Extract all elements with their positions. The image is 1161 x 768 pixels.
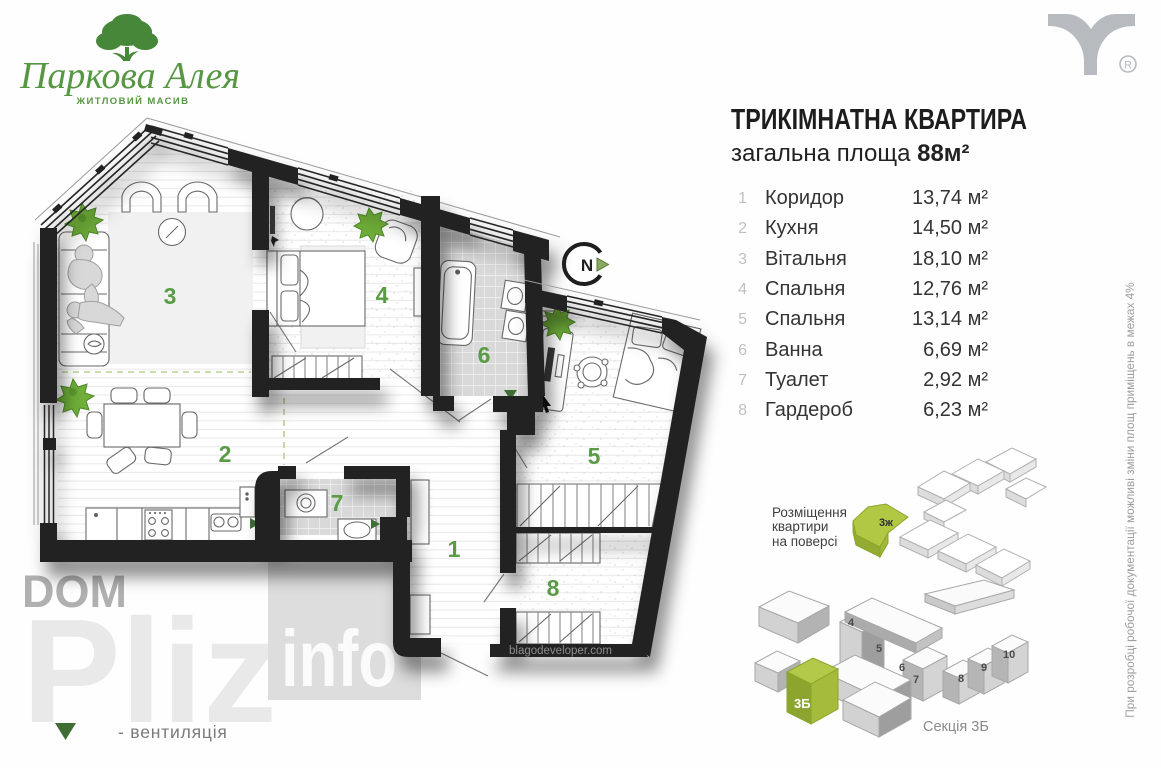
svg-text:Спальня: Спальня (765, 308, 845, 330)
svg-text:info: info (281, 614, 397, 703)
svg-text:ЖИТЛОВИЙ МАСИВ: ЖИТЛОВИЙ МАСИВ (76, 95, 190, 107)
svg-text:Розміщення: Розміщення (772, 505, 847, 520)
svg-text:Коридор: Коридор (765, 187, 844, 209)
svg-text:6,69 м²: 6,69 м² (923, 339, 988, 361)
svg-text:загальна площа 88м²: загальна площа 88м² (731, 140, 970, 167)
svg-text:2,92 м²: 2,92 м² (923, 369, 988, 391)
svg-text:8: 8 (738, 402, 747, 419)
svg-text:blagodeveloper.com: blagodeveloper.com (509, 645, 612, 657)
svg-text:12,76 м²: 12,76 м² (912, 278, 988, 300)
svg-text:14,50 м²: 14,50 м² (912, 217, 988, 239)
svg-text:1: 1 (448, 536, 461, 562)
svg-text:6: 6 (738, 342, 747, 359)
svg-text:5: 5 (588, 443, 601, 469)
svg-text:4: 4 (848, 617, 855, 629)
svg-text:13,14 м²: 13,14 м² (912, 308, 988, 330)
svg-text:18,10 м²: 18,10 м² (912, 248, 988, 270)
svg-text:Ванна: Ванна (765, 339, 824, 361)
svg-text:R: R (1124, 60, 1132, 72)
svg-text:Спальня: Спальня (765, 278, 845, 300)
svg-text:на поверсі: на поверсі (772, 534, 837, 549)
svg-text:3ж: 3ж (879, 517, 893, 529)
svg-text:4: 4 (376, 282, 389, 308)
svg-text:ТРИКІМНАТНА КВАРТИРА: ТРИКІМНАТНА КВАРТИРА (731, 104, 1027, 136)
svg-text:N: N (581, 256, 593, 275)
svg-text:2: 2 (738, 220, 747, 237)
svg-text:3Б: 3Б (794, 696, 811, 711)
svg-text:13,74 м²: 13,74 м² (912, 187, 988, 209)
svg-text:Секція 3Б: Секція 3Б (923, 719, 989, 735)
svg-text:10: 10 (1003, 649, 1015, 661)
svg-text:Туалет: Туалет (765, 369, 828, 391)
svg-text:Кухня: Кухня (765, 217, 819, 239)
svg-text:7: 7 (913, 674, 919, 686)
svg-text:9: 9 (981, 662, 987, 674)
svg-text:- вентиляція: - вентиляція (118, 722, 228, 742)
svg-text:7: 7 (331, 490, 344, 516)
svg-text:При розробці робочої документа: При розробці робочої документації можлив… (1123, 282, 1137, 718)
svg-text:8: 8 (547, 575, 560, 601)
svg-text:6,23 м²: 6,23 м² (923, 399, 988, 421)
svg-text:8: 8 (958, 673, 964, 685)
svg-text:Вітальня: Вітальня (765, 248, 847, 270)
svg-text:4: 4 (738, 281, 747, 298)
svg-text:Гардероб: Гардероб (765, 399, 853, 421)
svg-text:6: 6 (478, 342, 491, 368)
svg-text:5: 5 (876, 643, 882, 655)
svg-text:7: 7 (738, 372, 747, 389)
svg-text:квартири: квартири (772, 519, 828, 534)
svg-text:1: 1 (738, 190, 747, 207)
svg-text:5: 5 (738, 311, 747, 328)
svg-text:3: 3 (738, 251, 747, 268)
svg-text:2: 2 (219, 441, 232, 467)
svg-text:Паркова Алея: Паркова Алея (19, 55, 240, 97)
svg-text:3: 3 (164, 283, 177, 309)
svg-text:6: 6 (899, 662, 905, 674)
